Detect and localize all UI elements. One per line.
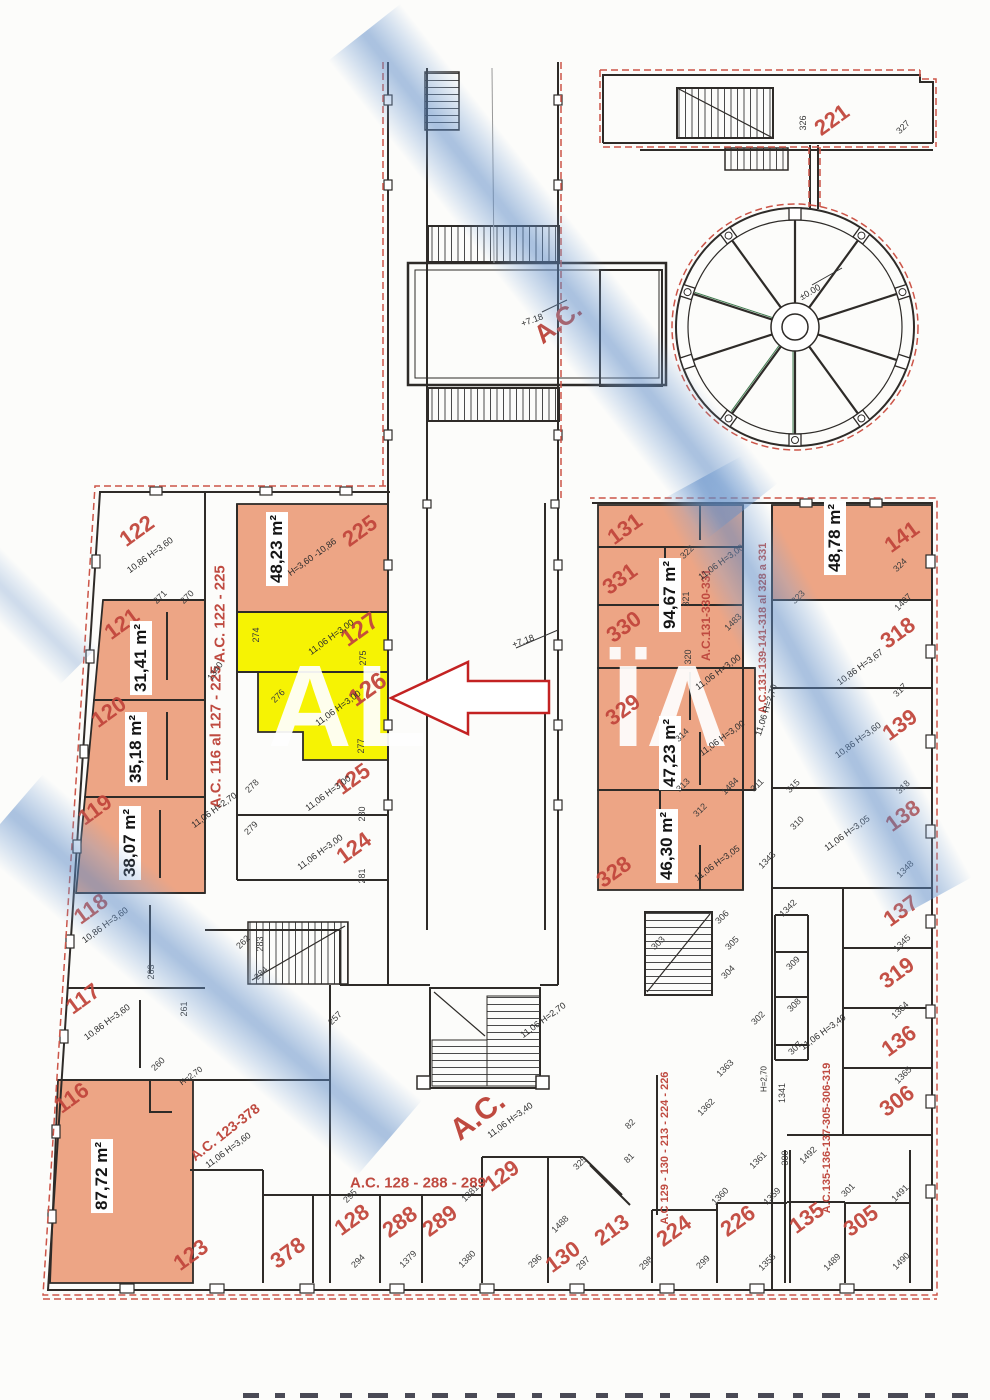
room-number-1490: 1490	[890, 1250, 911, 1271]
unit-label-139: 139	[878, 704, 923, 747]
room-number-270: 270	[178, 588, 196, 606]
room-number-325: 325	[571, 1154, 589, 1172]
area-label-94-67-m-: 94,67 m²	[659, 558, 681, 632]
room-number-298: 298	[637, 1254, 655, 1272]
unit-label-119: 119	[73, 789, 117, 831]
dim-label--0-00: ±0.00	[798, 282, 822, 302]
room-number-312: 312	[691, 801, 709, 819]
unit-label-329: 329	[601, 689, 646, 732]
room-number-300: 300	[780, 1150, 790, 1165]
dim-label-11-06-H-3-05: 11,06 H=3,05	[822, 813, 871, 853]
ac-label-A-C-131-330-331: A.C.131-330-331	[699, 569, 713, 661]
unit-label-331: 331	[598, 558, 643, 601]
room-number-1361: 1361	[747, 1149, 768, 1170]
room-number-1484: 1484	[719, 775, 740, 796]
unit-label-225: 225	[338, 510, 383, 553]
room-number-302: 302	[749, 1009, 767, 1027]
room-number-277: 277	[356, 738, 366, 753]
room-number-1379: 1379	[397, 1248, 418, 1269]
room-number-1345: 1345	[891, 932, 912, 953]
unit-label-117: 117	[61, 978, 105, 1020]
dim-label-11-06-H-3-00: 11,06 H=3,00	[696, 542, 745, 582]
room-number-279: 279	[242, 819, 260, 837]
room-number-1363: 1363	[714, 1057, 735, 1078]
room-number-321: 321	[681, 591, 691, 606]
room-number-1483: 1483	[722, 611, 743, 632]
room-number-1359: 1359	[761, 1185, 782, 1206]
unit-label-137: 137	[879, 890, 924, 933]
area-label-87-72-m-: 87,72 m²	[91, 1139, 113, 1213]
room-number-81: 81	[622, 1151, 636, 1165]
room-number-1342: 1342	[777, 897, 798, 918]
room-number-1348: 1348	[894, 858, 915, 879]
room-number-310: 310	[788, 814, 806, 832]
dim-label-11-06-H-3-40: 11,06 H=3,40	[798, 1012, 847, 1052]
dim-label-11-06-H-3-00: 11,06 H=3,00	[313, 688, 362, 728]
room-number-278: 278	[243, 777, 261, 795]
unit-label-131: 131	[603, 508, 648, 551]
dim-label--7-18: +7.18	[511, 632, 536, 649]
floorplan-page: AL ÏΛ 1222251211271201261191251241181171…	[0, 0, 990, 1400]
ac-label-A-C-135-136-137-305-306-319: A.C.135-136-137-305-306-319	[821, 1063, 833, 1213]
unit-label-128: 128	[330, 1199, 375, 1242]
room-number-317: 317	[891, 681, 909, 699]
room-number-1341: 1341	[777, 1083, 787, 1103]
room-number-1489: 1489	[821, 1251, 842, 1272]
area-label-38-07-m-: 38,07 m²	[119, 806, 141, 880]
room-number-306: 306	[713, 908, 731, 926]
room-number-262: 262	[234, 933, 252, 951]
area-label-35-18-m-: 35,18 m²	[125, 712, 147, 786]
unit-label-123: 123	[169, 1234, 214, 1277]
dim-label-10-86-H-3-60: 10,86 H=3,60	[833, 720, 883, 760]
unit-label-213: 213	[590, 1209, 635, 1252]
unit-label-288: 288	[378, 1201, 423, 1244]
room-number-271: 271	[151, 588, 169, 606]
ac-label-A-C-: A.C.	[444, 1084, 512, 1148]
area-label-48-23-m-: 48,23 m²	[266, 512, 288, 586]
unit-label-330: 330	[602, 606, 647, 649]
dim-label-10-86-H-3-67: 10,86 H=3,67	[835, 647, 885, 687]
room-number-327: 327	[894, 118, 912, 136]
room-number-280: 280	[357, 806, 367, 821]
unit-label-226: 226	[716, 1200, 761, 1243]
unit-label-221: 221	[810, 99, 855, 142]
room-number-303: 303	[649, 934, 667, 952]
room-number-275: 275	[358, 650, 368, 665]
room-number-1407: 1407	[892, 591, 913, 612]
room-number-304: 304	[719, 963, 737, 981]
area-label-31-41-m-: 31,41 m²	[130, 621, 152, 695]
room-number-261: 261	[179, 1001, 189, 1016]
room-number-1491: 1491	[889, 1182, 910, 1203]
room-number-1358: 1358	[756, 1251, 777, 1272]
ac-label-A-C-129-130-213-224-226: A.C 129 - 130 - 213 - 224 - 226	[659, 1072, 671, 1225]
room-number-274: 274	[251, 627, 261, 642]
room-number-1343: 1343	[756, 849, 777, 870]
unit-label-116: 116	[50, 1077, 94, 1119]
room-number-1362: 1362	[695, 1096, 716, 1117]
room-number-299: 299	[694, 1253, 712, 1271]
dim-label-H-2-70: H=2,70	[178, 1065, 204, 1088]
room-number-296: 296	[526, 1252, 544, 1270]
labels-layer: 1222251211271201261191251241181171161233…	[0, 0, 990, 1400]
room-number-315: 315	[784, 777, 802, 795]
ac-label-A-C-116-al-127-225: A.C. 116 al 127 - 225	[208, 666, 225, 809]
unit-label-319: 319	[875, 952, 920, 995]
room-number-311: 311	[748, 776, 765, 793]
dim-label-11-06-H-2-70: 11,06 H=2,70	[518, 1000, 567, 1040]
unit-label-130: 130	[541, 1236, 586, 1279]
room-number-257: 257	[326, 1009, 344, 1027]
unit-label-289: 289	[418, 1200, 463, 1243]
dim-label-11-06-H-3-00: 11,06 H=3,00	[697, 718, 746, 758]
unit-label-306: 306	[875, 1080, 920, 1123]
unit-label-138: 138	[881, 795, 926, 838]
room-number-301: 301	[839, 1181, 857, 1199]
unit-label-318: 318	[876, 612, 921, 655]
room-number-281: 281	[357, 868, 367, 883]
unit-label-378: 378	[266, 1232, 311, 1275]
room-number-284: 284	[252, 964, 270, 982]
room-number-276: 276	[269, 687, 287, 705]
room-number-323: 323	[789, 588, 807, 606]
room-number-263: 263	[146, 964, 156, 979]
room-number-1488: 1488	[549, 1213, 570, 1234]
dim-label-11-06-H-3-05: 11,06 H=3,05	[692, 843, 741, 883]
dim-label-H-3-60-10-86: H=3,60 -10,86	[286, 536, 338, 578]
room-number-318: 318	[894, 778, 912, 796]
room-number-82: 82	[623, 1117, 637, 1131]
unit-label-129: 129	[480, 1155, 525, 1198]
unit-label-141: 141	[880, 516, 925, 559]
room-number-320: 320	[683, 649, 693, 664]
room-number-309: 309	[784, 954, 802, 972]
unit-label-126: 126	[344, 667, 393, 713]
dim-label-H-2-70: H=2,70	[760, 1066, 769, 1092]
room-number-305: 305	[723, 934, 741, 952]
unit-label-136: 136	[877, 1020, 922, 1063]
room-number-260: 260	[149, 1055, 167, 1073]
area-label-48-78-m-: 48,78 m²	[824, 501, 846, 575]
room-number-294: 294	[349, 1252, 367, 1270]
room-number-1360: 1360	[709, 1185, 730, 1206]
room-number-1364: 1364	[889, 999, 910, 1020]
unit-label-328: 328	[592, 851, 637, 894]
room-number-308: 308	[785, 996, 803, 1014]
area-label-46-30-m-: 46,30 m²	[656, 809, 678, 883]
unit-label-305: 305	[839, 1200, 884, 1243]
room-number-324: 324	[891, 556, 909, 574]
room-number-326: 326	[798, 115, 808, 130]
room-number-1492: 1492	[797, 1144, 818, 1165]
ac-label-A-C-122-225: A.C. 122 - 225	[212, 565, 229, 663]
room-number-283: 283	[255, 936, 265, 951]
room-number-1380: 1380	[456, 1248, 477, 1269]
area-label-47-23-m-: 47,23 m²	[659, 716, 681, 790]
